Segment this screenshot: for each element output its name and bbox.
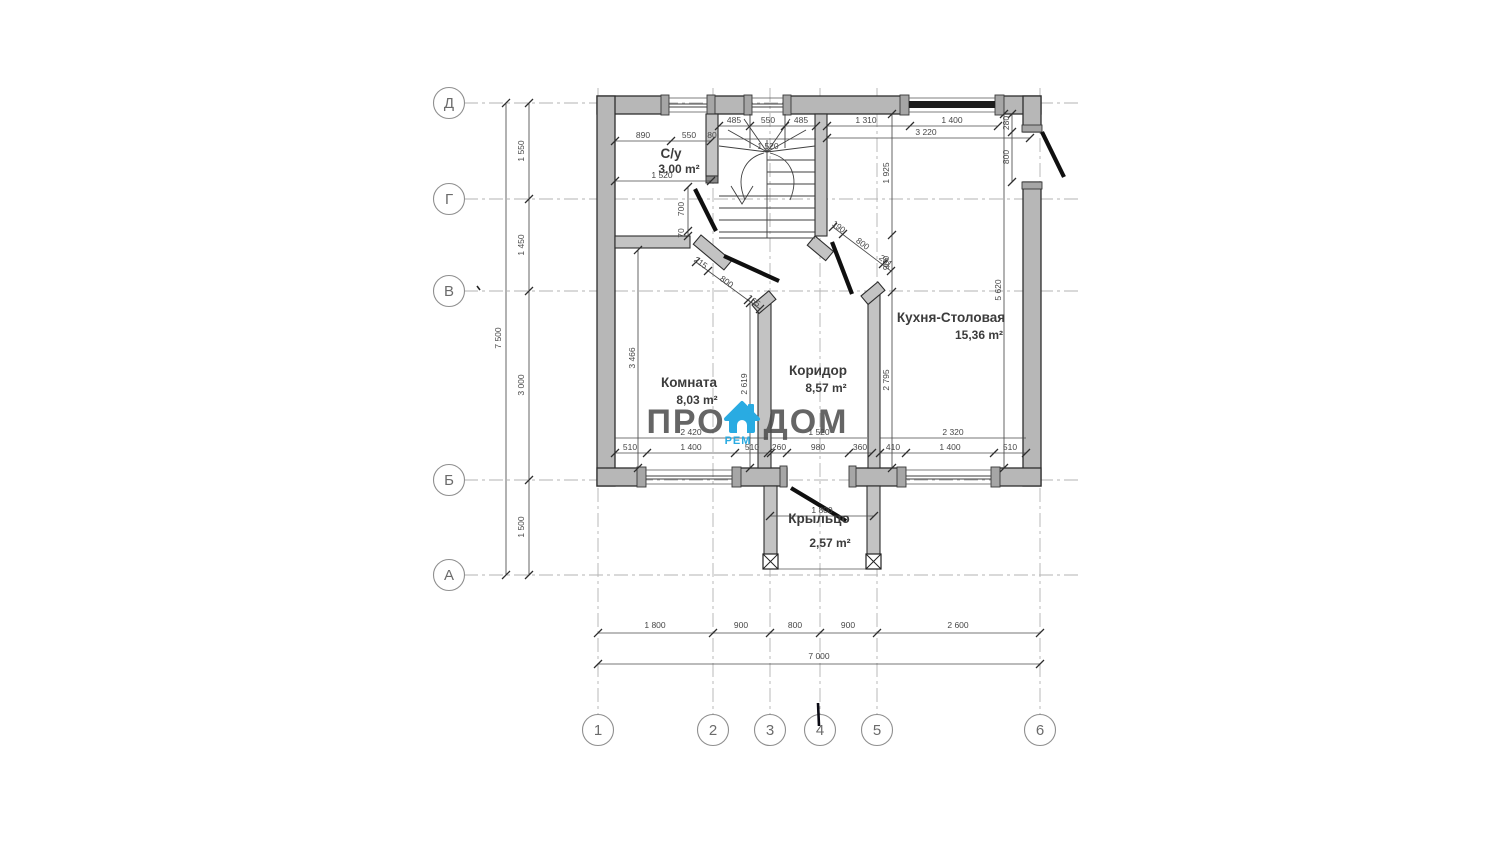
dim-left-total: 7 500 (493, 99, 510, 579)
room-area-porch: 2,57 m² (809, 536, 850, 550)
dim-label: 215 (692, 254, 710, 271)
tick-artifact (477, 286, 480, 290)
window-bathroom (661, 95, 715, 115)
dim-label: 900 (734, 620, 748, 630)
dim-label: 80 (707, 130, 717, 140)
dim-bottom-row: 1 800 900 800 900 2 600 (594, 620, 1044, 637)
dim-bottom-total: 7 000 (594, 651, 1044, 668)
watermark-sub: РЕМ (725, 435, 752, 447)
axis-label: А (444, 567, 454, 584)
axis-label: 6 (1036, 722, 1044, 739)
dim-label: 980 (811, 442, 825, 452)
axis-label: Д (444, 95, 454, 112)
room-area-bathroom: 3,00 m² (658, 162, 699, 176)
axis-col-5: 5 (862, 715, 893, 746)
dim-label: 890 (636, 130, 650, 140)
porch-structure (763, 486, 881, 569)
axis-row-V: В (434, 276, 465, 307)
dim-label: 510 (623, 442, 637, 452)
axis-col-2: 2 (698, 715, 729, 746)
axis-label: 2 (709, 722, 717, 739)
window-room (637, 467, 741, 487)
window-stairs (744, 95, 791, 115)
watermark: ПРО ДОМ РЕМ (646, 403, 848, 447)
room-name-bathroom: С/у (660, 146, 682, 161)
porch-post-right (866, 554, 881, 569)
dim-label: 7 500 (493, 327, 503, 349)
dim-label: 700 (676, 202, 686, 216)
cursor-artifact (818, 703, 819, 726)
dim-label: 550 (761, 115, 775, 125)
dim-label: 485 (794, 115, 808, 125)
dim-label: 1 310 (855, 115, 877, 125)
dim-label: 360 (853, 442, 867, 452)
axis-row-D: Д (434, 88, 465, 119)
dim-stairs: 485 550 485 1 520 (715, 115, 820, 151)
room-name-room: Комната (661, 375, 718, 390)
dim-kitchen-door: 190 800 281 (829, 218, 895, 275)
house-icon (726, 403, 758, 433)
door-leaf-kitchen (832, 242, 852, 294)
dim-label: 1 520 (757, 141, 779, 151)
floor-plan-canvas: 1 800 900 800 900 2 600 7 000 1 550 1 45… (0, 0, 1500, 844)
axis-label: Г (445, 191, 453, 208)
dim-label: 70 (676, 228, 686, 238)
dim-label: 2 600 (947, 620, 969, 630)
dim-label: 1 400 (941, 115, 963, 125)
dim-entry-door: 280 800 (1001, 110, 1016, 186)
dim-label: 550 (682, 130, 696, 140)
porch-post-left (763, 554, 778, 569)
staircase (719, 114, 815, 238)
window-kitchen-bottom (897, 467, 1000, 487)
axis-label: В (444, 283, 454, 300)
dim-label: 7 000 (808, 651, 830, 661)
room-area-kitchen: 15,36 m² (955, 328, 1003, 342)
dim-left-column: 1 550 1 450 3 000 1 500 (516, 99, 533, 579)
watermark-text-pro: ПРО (646, 403, 725, 441)
dim-label: 510 (1003, 442, 1017, 452)
floor-plan-drawing: 1 800 900 800 900 2 600 7 000 1 550 1 45… (0, 0, 1500, 844)
axis-col-6: 6 (1025, 715, 1056, 746)
axis-col-3: 3 (755, 715, 786, 746)
watermark-text-dom: ДОМ (764, 403, 849, 441)
dim-label: 2 320 (942, 427, 964, 437)
room-name-kitchen: Кухня-Столовая (897, 310, 1005, 325)
dim-label: 485 (727, 115, 741, 125)
axis-label: 1 (594, 722, 602, 739)
dim-label: 800 (718, 273, 736, 290)
room-name-corridor: Коридор (789, 363, 847, 378)
dim-label: 800 (1001, 150, 1011, 164)
dim-label: 800 (788, 620, 802, 630)
axis-label: 3 (766, 722, 774, 739)
dim-label: 1 500 (516, 516, 526, 538)
dim-label: 1 800 (644, 620, 666, 630)
dim-label: 3 220 (915, 127, 937, 137)
room-area-corridor: 8,57 m² (805, 381, 846, 395)
axis-row-G: Г (434, 184, 465, 215)
dim-label: 3 466 (627, 347, 637, 369)
dim-label: 5 620 (993, 279, 1003, 301)
dim-label: 1 450 (516, 234, 526, 256)
dim-label: 1 550 (516, 140, 526, 162)
dim-label: 1 400 (939, 442, 961, 452)
door-leaf-entry (1042, 132, 1064, 177)
dim-label: 1 400 (680, 442, 702, 452)
axis-row-B: Б (434, 465, 465, 496)
axis-row-A: А (434, 560, 465, 591)
dim-label: 3 000 (516, 374, 526, 396)
dim-label: 280 (1001, 116, 1011, 130)
door-leaf-room (724, 256, 779, 281)
room-name-porch: Крыльцо (788, 511, 849, 526)
dim-label: 800 (854, 235, 872, 252)
dim-label: 2 795 (881, 369, 891, 391)
axis-label: 5 (873, 722, 881, 739)
axis-col-1: 1 (583, 715, 614, 746)
dim-label: 900 (841, 620, 855, 630)
dim-label: 1 925 (881, 162, 891, 184)
axis-label: Б (444, 472, 454, 489)
dim-kitchen-bottom: 2 320 410 1 400 510 (876, 427, 1030, 457)
dim-label: 410 (886, 442, 900, 452)
room-labels: С/у 3,00 m² Комната 8,03 m² Коридор 8,57… (658, 146, 1005, 550)
window-kitchen-top (900, 95, 1004, 115)
dim-label: 260 (772, 442, 786, 452)
dim-label: 2 619 (739, 373, 749, 395)
